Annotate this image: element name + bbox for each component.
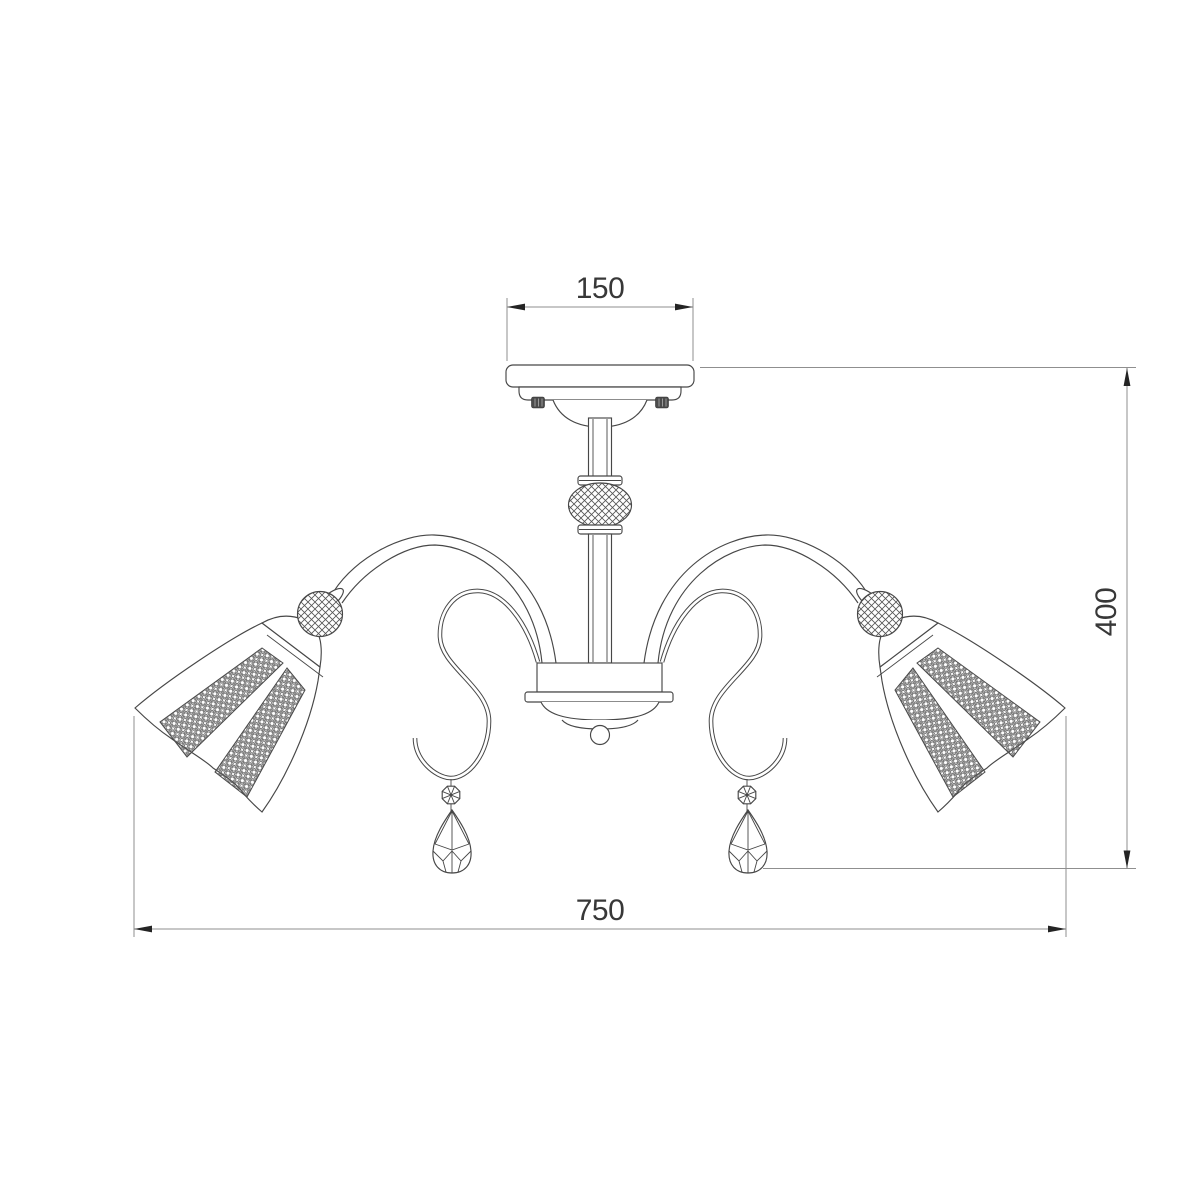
arrowhead-bottom-400 [1124, 851, 1131, 869]
right-bell-shade [877, 616, 1065, 812]
right-arm-outer-line [644, 535, 866, 663]
dimension-canopy-width: 150 [507, 272, 693, 361]
finial-ball [591, 726, 610, 745]
arrowhead-left-150 [507, 304, 525, 311]
right-pendant [729, 779, 767, 873]
left-bell-shade [135, 616, 323, 812]
arrowhead-right-150 [675, 304, 693, 311]
hub-flange [525, 692, 673, 702]
ceiling-plate [506, 365, 694, 387]
arrowhead-top-400 [1124, 368, 1131, 386]
dimension-label-fixture-width: 750 [576, 894, 625, 927]
right-arm-joint [853, 585, 902, 637]
central-hub [525, 663, 673, 745]
dimension-label-canopy-width: 150 [576, 272, 625, 305]
right-joint-crystal-ball [858, 592, 903, 637]
arrowhead-right-750 [1048, 926, 1066, 933]
left-pendant [433, 779, 471, 873]
left-arm-outer-line [334, 535, 556, 663]
faceted-crystal-sphere [569, 483, 632, 527]
right-curved-arm [644, 535, 866, 663]
dimension-label-fixture-height: 400 [1090, 588, 1123, 637]
stem-upper-tube [589, 418, 612, 477]
left-curved-arm [334, 535, 556, 663]
left-s-scroll [415, 591, 538, 778]
right-scroll-core [662, 591, 785, 778]
chandelier-technical-drawing: 150 400 750 [0, 0, 1200, 1200]
left-arm-joint [298, 585, 347, 637]
right-s-scroll [662, 591, 785, 778]
center-stem [569, 418, 632, 663]
arrowhead-left-750 [134, 926, 152, 933]
hub-bowl-upper [541, 702, 659, 720]
left-scroll-core [415, 591, 538, 778]
mounting-screw-right [656, 397, 669, 408]
drawing-canvas: 150 400 750 [0, 0, 1200, 1200]
stem-lower-tube [589, 534, 612, 663]
hub-cylinder [537, 663, 662, 692]
left-joint-crystal-ball [298, 592, 343, 637]
mounting-screw-left [532, 397, 545, 408]
